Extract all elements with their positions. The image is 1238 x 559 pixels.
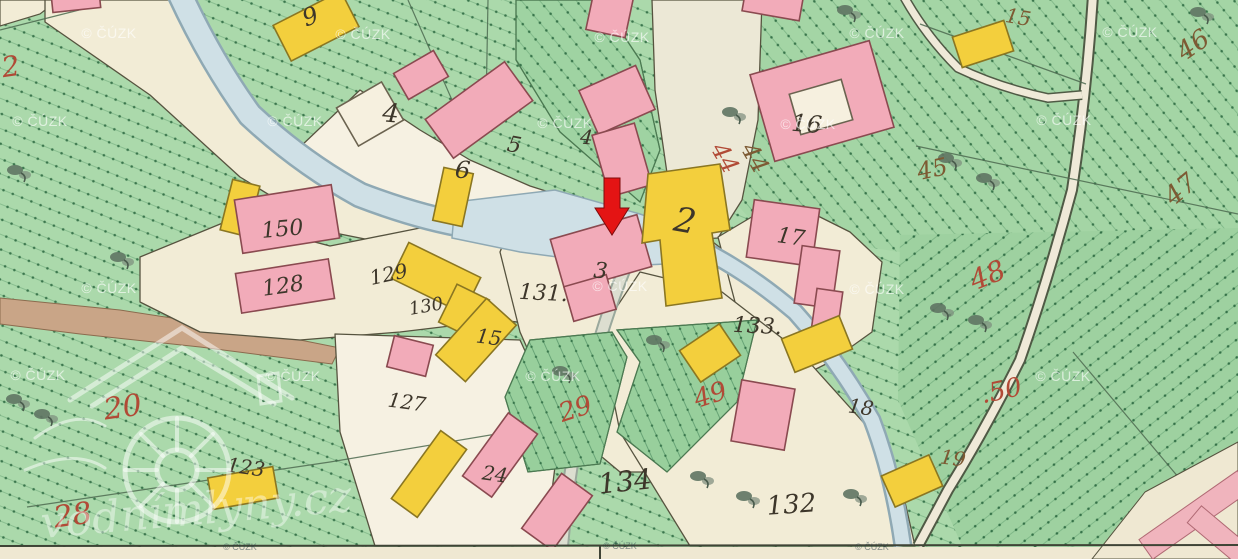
parcel-number-label: 24	[480, 460, 510, 487]
cuzk-watermark: © ČÚZK	[1036, 112, 1091, 128]
cuzk-watermark: © ČÚZK	[10, 367, 65, 383]
cuzk-watermark: © ČÚZK	[265, 368, 320, 384]
cuzk-watermark-small: © ČÚZK	[223, 542, 257, 552]
parcel-number-label: 18	[847, 393, 876, 420]
parcel-number-label: 4	[380, 98, 400, 129]
cadastral-map-canvas: 9456423161718150128129130131.127133.1341…	[0, 0, 1238, 559]
parcel-number-label: 15	[475, 323, 504, 350]
parcel-number-label: 150	[260, 215, 304, 244]
cuzk-watermark: © ČÚZK	[594, 29, 649, 45]
parcel-number-label: 6	[454, 155, 472, 184]
cuzk-watermark: © ČÚZK	[12, 113, 67, 129]
cuzk-watermark: © ČÚZK	[592, 278, 647, 294]
cuzk-watermark: © ČÚZK	[267, 113, 322, 129]
parcel-number-label: 15	[1004, 3, 1033, 31]
cuzk-watermark: © ČÚZK	[525, 368, 580, 384]
cuzk-watermark: © ČÚZK	[849, 25, 904, 41]
cuzk-watermark: © ČÚZK	[849, 281, 904, 297]
cuzk-watermark: © ČÚZK	[780, 116, 835, 132]
building	[731, 380, 795, 450]
cuzk-watermark-small: © ČÚZK	[603, 541, 637, 551]
parcel-number-label: 133.	[732, 313, 782, 341]
parcel-number-label: 132	[766, 488, 818, 521]
cuzk-watermark: © ČÚZK	[1035, 368, 1090, 384]
parcel-number-label: 17	[775, 223, 806, 252]
cuzk-watermark: © ČÚZK	[81, 25, 136, 41]
parcel-number-label: 19	[939, 444, 968, 471]
cuzk-watermark: © ČÚZK	[335, 26, 390, 42]
parcel-number-label: 131.	[518, 280, 568, 308]
cuzk-watermark-small: © ČÚZK	[855, 542, 889, 552]
parcel-number-label: 134	[597, 462, 654, 500]
cuzk-watermark: © ČÚZK	[1102, 24, 1157, 40]
cuzk-watermark: © ČÚZK	[81, 280, 136, 296]
cuzk-watermark: © ČÚZK	[537, 115, 592, 131]
map-viewport[interactable]: 9456423161718150128129130131.127133.1341…	[0, 0, 1238, 559]
